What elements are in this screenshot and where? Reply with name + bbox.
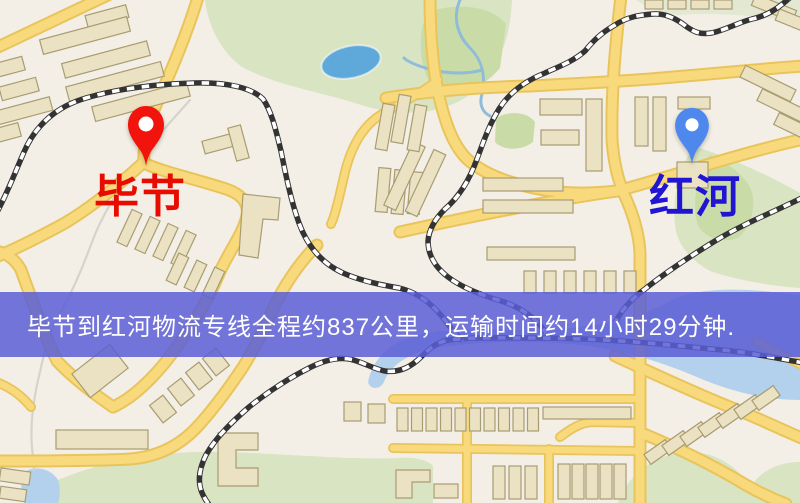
destination-pin[interactable] [673,106,711,166]
route-info-banner: 毕节到红河物流专线全程约837公里，运输时间约14小时29分钟. [0,292,800,357]
map-viewport[interactable]: 毕节到红河物流专线全程约837公里，运输时间约14小时29分钟. 毕节 红河 [0,0,800,503]
blue-map-pin-icon [673,106,711,166]
destination-place-label: 红河 [640,174,750,219]
map-canvas [0,0,800,503]
red-map-pin-icon [126,104,166,168]
origin-place-label: 毕节 [85,174,195,219]
origin-pin[interactable] [126,104,166,168]
route-info-text: 毕节到红河物流专线全程约837公里，运输时间约14小时29分钟. [27,307,735,342]
